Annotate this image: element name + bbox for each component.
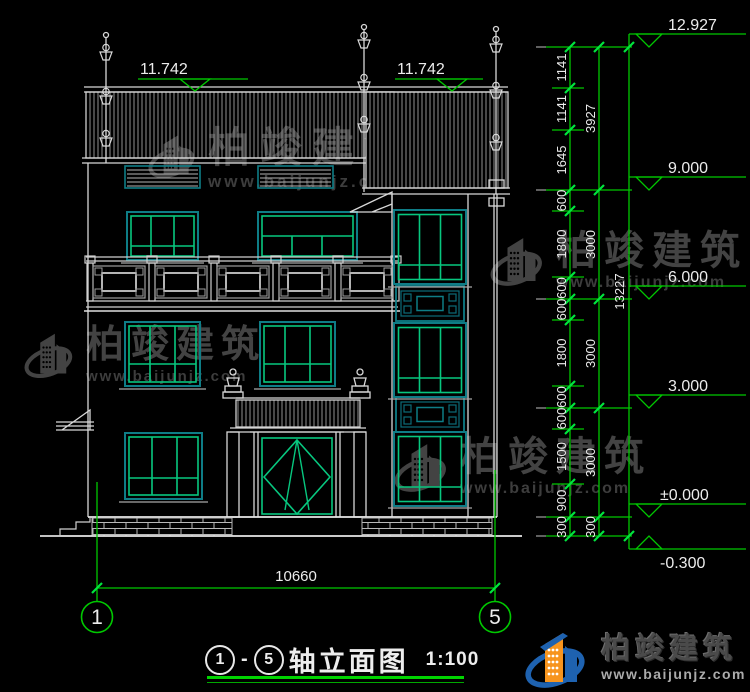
footer-url-text: www.baijunjz.com	[601, 666, 746, 682]
level-label: -0.300	[660, 555, 705, 572]
title-underline-thin	[207, 682, 464, 683]
level-markers	[629, 34, 746, 549]
drawing-title: 轴立面图	[289, 640, 409, 679]
title-block: 1 - 5 轴立面图 1:100	[205, 640, 479, 679]
eave-bracket-middle	[350, 192, 392, 212]
dim-label: 600	[554, 408, 569, 430]
roof-ridge	[84, 87, 508, 92]
cad-elevation-page: 柏竣建筑 www.baijunjz.com 柏竣建筑 www.baijunjz.…	[0, 0, 750, 692]
building-outline	[40, 25, 522, 537]
dim-label: 3000	[583, 230, 598, 259]
dim-label: 1141	[554, 54, 569, 82]
level-label: 6.000	[668, 269, 708, 286]
stairwell-windows	[388, 210, 472, 508]
dim-label: 3000	[583, 448, 598, 477]
dim-label: 1800	[554, 339, 569, 368]
window-2f-right	[254, 322, 341, 389]
window-1f-left	[119, 433, 208, 502]
roof-left	[82, 92, 394, 163]
dim-label: 1645	[554, 146, 569, 175]
dim-label: 600	[554, 190, 569, 212]
dim-label: 300	[554, 516, 569, 538]
dim-label: 13227	[612, 273, 627, 309]
dim-label: 600	[554, 299, 569, 321]
elevation-drawing: 1141 1141 1645 600 1800 600 600 1800 600…	[0, 0, 750, 692]
balcony-railing	[84, 256, 401, 311]
window-3f-left	[121, 212, 204, 263]
dim-label: 3927	[583, 104, 598, 133]
footer-brand: 柏竣建筑 www.baijunjz.com	[521, 626, 746, 690]
dim-label: 1141	[554, 95, 569, 123]
dim-label: 900	[554, 490, 569, 512]
roof-right-wing	[362, 92, 510, 194]
entrance-door	[250, 432, 344, 517]
louver-vent-left	[125, 166, 200, 188]
plinth-and-ground	[40, 517, 522, 536]
window-2f-left	[119, 322, 206, 389]
window-3f-right	[252, 212, 363, 263]
roof-level-label: 11.742	[397, 61, 445, 78]
dim-label: 1800	[554, 230, 569, 259]
level-label: ±0.000	[660, 487, 709, 504]
axis-bubble-left-label: 1	[91, 606, 103, 629]
level-label: 9.000	[668, 160, 708, 177]
dim-label: 3000	[583, 339, 598, 368]
roof-level-markers	[138, 79, 483, 91]
level-label: 12.927	[668, 17, 717, 34]
title-underline-thick	[207, 676, 464, 679]
title-axis-start: 1	[205, 645, 235, 675]
roof-level-label: 11.742	[140, 61, 188, 78]
louver-vent-right	[258, 166, 333, 188]
drawing-scale: 1:100	[426, 649, 480, 671]
dim-label: 600	[554, 277, 569, 299]
title-axis-end: 5	[254, 645, 284, 675]
dim-label: 300	[583, 516, 598, 538]
title-separator: -	[241, 648, 248, 671]
dim-label: 600	[554, 386, 569, 408]
axis-bubble-right-label: 5	[489, 606, 501, 629]
footer-brand-text: 柏竣建筑	[601, 634, 746, 666]
overall-width-label: 10660	[275, 568, 317, 585]
brand-logo-color-icon	[521, 626, 593, 690]
dim-label: 1500	[554, 442, 569, 471]
level-label: 3.000	[668, 378, 708, 395]
